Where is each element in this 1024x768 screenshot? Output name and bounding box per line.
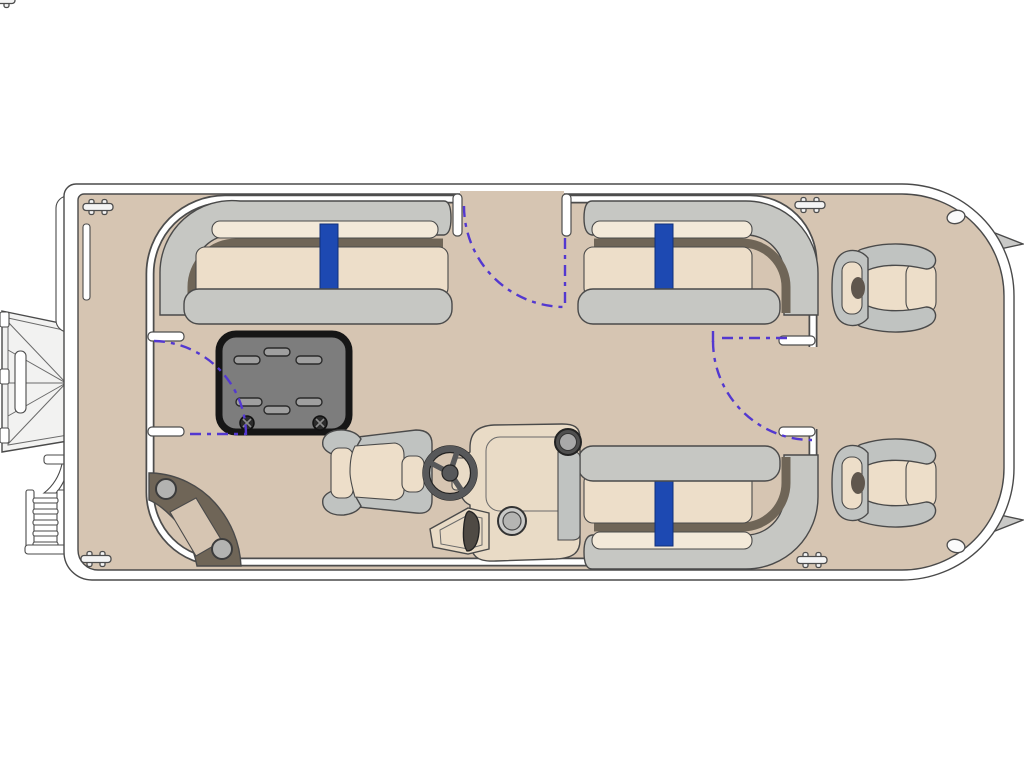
bench-seat-bow-starboard xyxy=(578,201,818,324)
seat-accent-stripe xyxy=(655,224,673,298)
speaker-grille xyxy=(156,479,176,499)
bench-seat-bow-port xyxy=(160,201,452,324)
gate-starboard-opening xyxy=(804,347,822,429)
headrest xyxy=(851,277,865,299)
seat-accent-stripe xyxy=(320,224,338,298)
gate-post xyxy=(779,427,815,436)
captain-chair xyxy=(323,430,432,515)
gate-post xyxy=(453,194,462,236)
floorplan-canvas xyxy=(0,0,1024,768)
pontoon-floorplan xyxy=(0,0,1024,768)
bow-boarding-gangway xyxy=(0,311,74,452)
rear-chair xyxy=(832,439,936,527)
speaker-grille xyxy=(212,539,232,559)
seat-accent-stripe xyxy=(655,472,673,546)
windscreen-panel xyxy=(558,452,580,540)
rear-chair xyxy=(832,244,936,332)
gate-post xyxy=(148,427,184,436)
ladder-rungs xyxy=(33,498,58,547)
gate-bow-center-opening xyxy=(460,191,564,206)
bench-seat-aft-starboard xyxy=(578,446,818,569)
cleat xyxy=(0,0,15,8)
gate-post xyxy=(148,332,184,341)
removable-table xyxy=(219,334,349,432)
gate-post xyxy=(562,194,571,236)
gangway-handle xyxy=(15,351,26,413)
gate-hinge-slot xyxy=(83,224,90,300)
